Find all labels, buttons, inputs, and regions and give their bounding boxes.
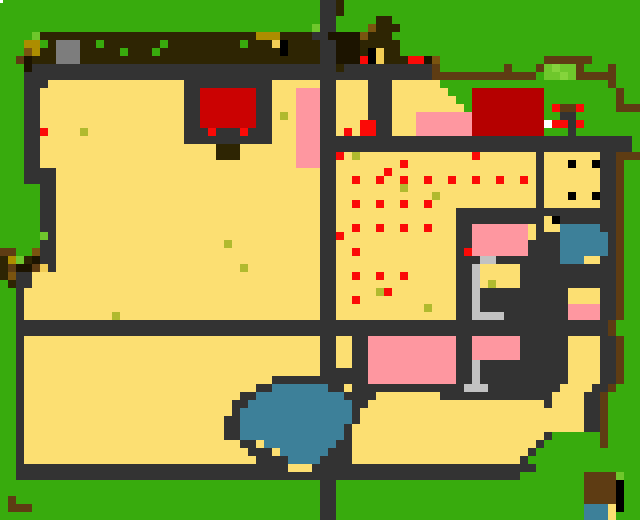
pixel-map-canvas[interactable] (0, 0, 640, 520)
game-map-viewport (0, 0, 640, 520)
